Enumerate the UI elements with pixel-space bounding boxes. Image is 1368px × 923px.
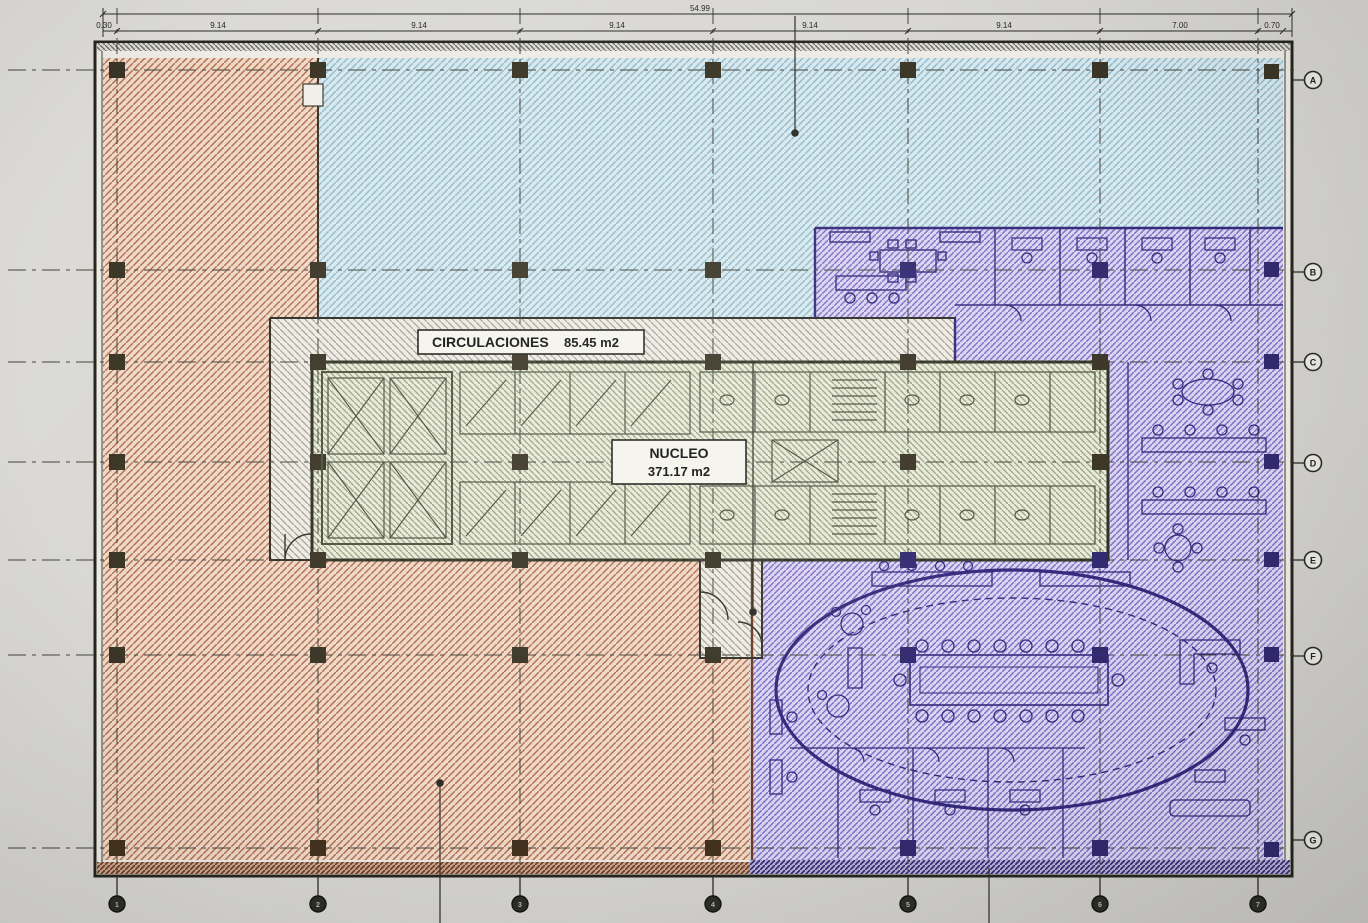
svg-text:C: C xyxy=(1310,358,1317,368)
floorplan-photo: 54.99 0.30 9.14 9.14 9.14 9.14 9.14 7.00… xyxy=(0,0,1368,923)
svg-text:4: 4 xyxy=(711,902,715,909)
column-marker: 2 xyxy=(310,876,326,912)
svg-text:F: F xyxy=(1310,652,1316,662)
svg-text:1: 1 xyxy=(115,902,119,909)
floorplan-drawing: 54.99 0.30 9.14 9.14 9.14 9.14 9.14 7.00… xyxy=(0,0,1368,923)
svg-text:E: E xyxy=(1310,556,1316,566)
svg-text:G: G xyxy=(1309,836,1316,846)
svg-text:2: 2 xyxy=(316,902,320,909)
row-marker: C xyxy=(1292,354,1322,371)
column-marker: 5 xyxy=(900,876,916,912)
wall-fixture xyxy=(303,84,323,106)
nucleo-area: 371.17 m2 xyxy=(648,464,710,479)
row-marker: G xyxy=(1292,832,1322,849)
dim-left-offset: 0.30 xyxy=(96,21,112,30)
row-marker: F xyxy=(1292,648,1322,665)
circulaciones-name: CIRCULACIONES xyxy=(432,334,549,350)
svg-text:A: A xyxy=(1310,76,1317,86)
dim-segment: 0.70 xyxy=(1264,21,1280,30)
svg-text:B: B xyxy=(1310,268,1317,278)
column-marker: 4 xyxy=(705,876,721,912)
dim-segment: 9.14 xyxy=(210,21,226,30)
row-marker: A xyxy=(1292,72,1322,89)
column-markers: 1 2 3 4 5 6 7 xyxy=(109,876,1266,912)
bottom-wall-hatch-left xyxy=(97,862,750,874)
svg-text:6: 6 xyxy=(1098,902,1102,909)
row-marker: E xyxy=(1292,552,1322,569)
dim-total: 54.99 xyxy=(690,4,711,13)
row-marker: B xyxy=(1292,264,1322,281)
bottom-wall-hatch-right xyxy=(750,860,1290,874)
svg-text:3: 3 xyxy=(518,902,522,909)
dim-segment: 9.14 xyxy=(802,21,818,30)
column-marker: 3 xyxy=(512,876,528,912)
circulaciones-area: 85.45 m2 xyxy=(564,335,619,350)
svg-text:7: 7 xyxy=(1256,902,1260,909)
circulaciones-label-box: CIRCULACIONES 85.45 m2 xyxy=(418,330,644,354)
row-markers: A B C D E F G xyxy=(1292,72,1322,849)
dim-segment: 9.14 xyxy=(996,21,1012,30)
svg-text:D: D xyxy=(1310,459,1317,469)
row-marker: D xyxy=(1292,455,1322,472)
dim-segment: 9.14 xyxy=(411,21,427,30)
svg-text:5: 5 xyxy=(906,902,910,909)
dim-segment: 7.00 xyxy=(1172,21,1188,30)
nucleo-label-box: NUCLEO 371.17 m2 xyxy=(612,440,746,484)
column-marker: 7 xyxy=(1250,876,1266,912)
nucleo-name: NUCLEO xyxy=(649,445,708,461)
top-wall-hatch xyxy=(97,43,1290,51)
column-marker: 6 xyxy=(1092,876,1108,912)
dim-segment: 9.14 xyxy=(609,21,625,30)
dimension-labels: 54.99 0.30 9.14 9.14 9.14 9.14 9.14 7.00… xyxy=(96,4,1280,30)
column-marker: 1 xyxy=(109,876,125,912)
